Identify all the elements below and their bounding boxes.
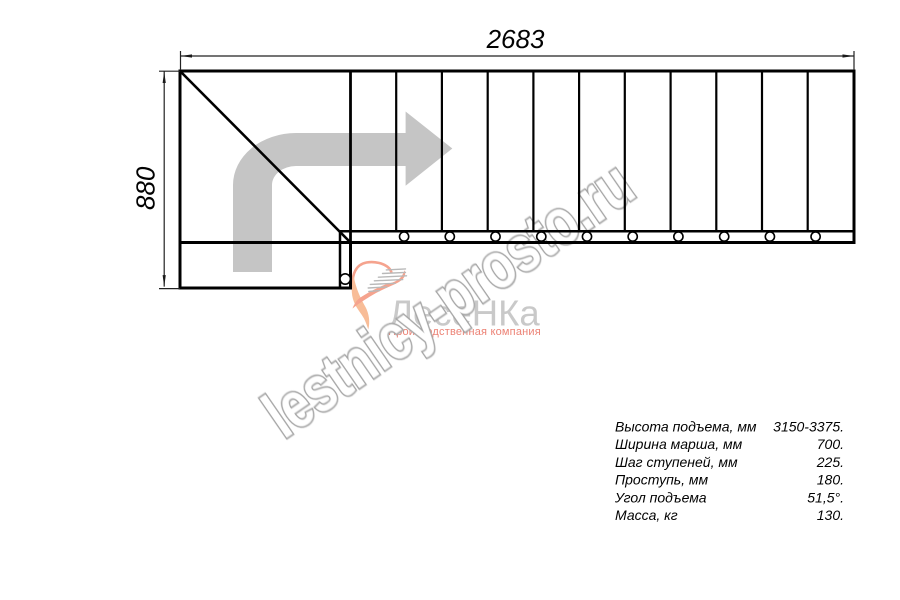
svg-text:51,5°.: 51,5°.: [807, 489, 844, 505]
svg-text:Ширина марша, мм: Ширина марша, мм: [615, 436, 743, 452]
svg-text:180.: 180.: [817, 472, 844, 488]
svg-text:2683: 2683: [486, 24, 545, 54]
svg-text:880: 880: [131, 166, 161, 210]
svg-text:225.: 225.: [816, 454, 844, 470]
svg-text:Масса, кг: Масса, кг: [615, 507, 678, 523]
svg-text:Шаг ступеней, мм: Шаг ступеней, мм: [615, 454, 738, 470]
svg-text:3150-3375.: 3150-3375.: [773, 419, 844, 435]
svg-text:Высота подъема, мм: Высота подъема, мм: [615, 419, 757, 435]
svg-text:Проступь, мм: Проступь, мм: [615, 472, 709, 488]
svg-text:700.: 700.: [817, 436, 844, 452]
svg-text:Угол подъема: Угол подъема: [614, 489, 707, 505]
svg-text:130.: 130.: [817, 507, 844, 523]
